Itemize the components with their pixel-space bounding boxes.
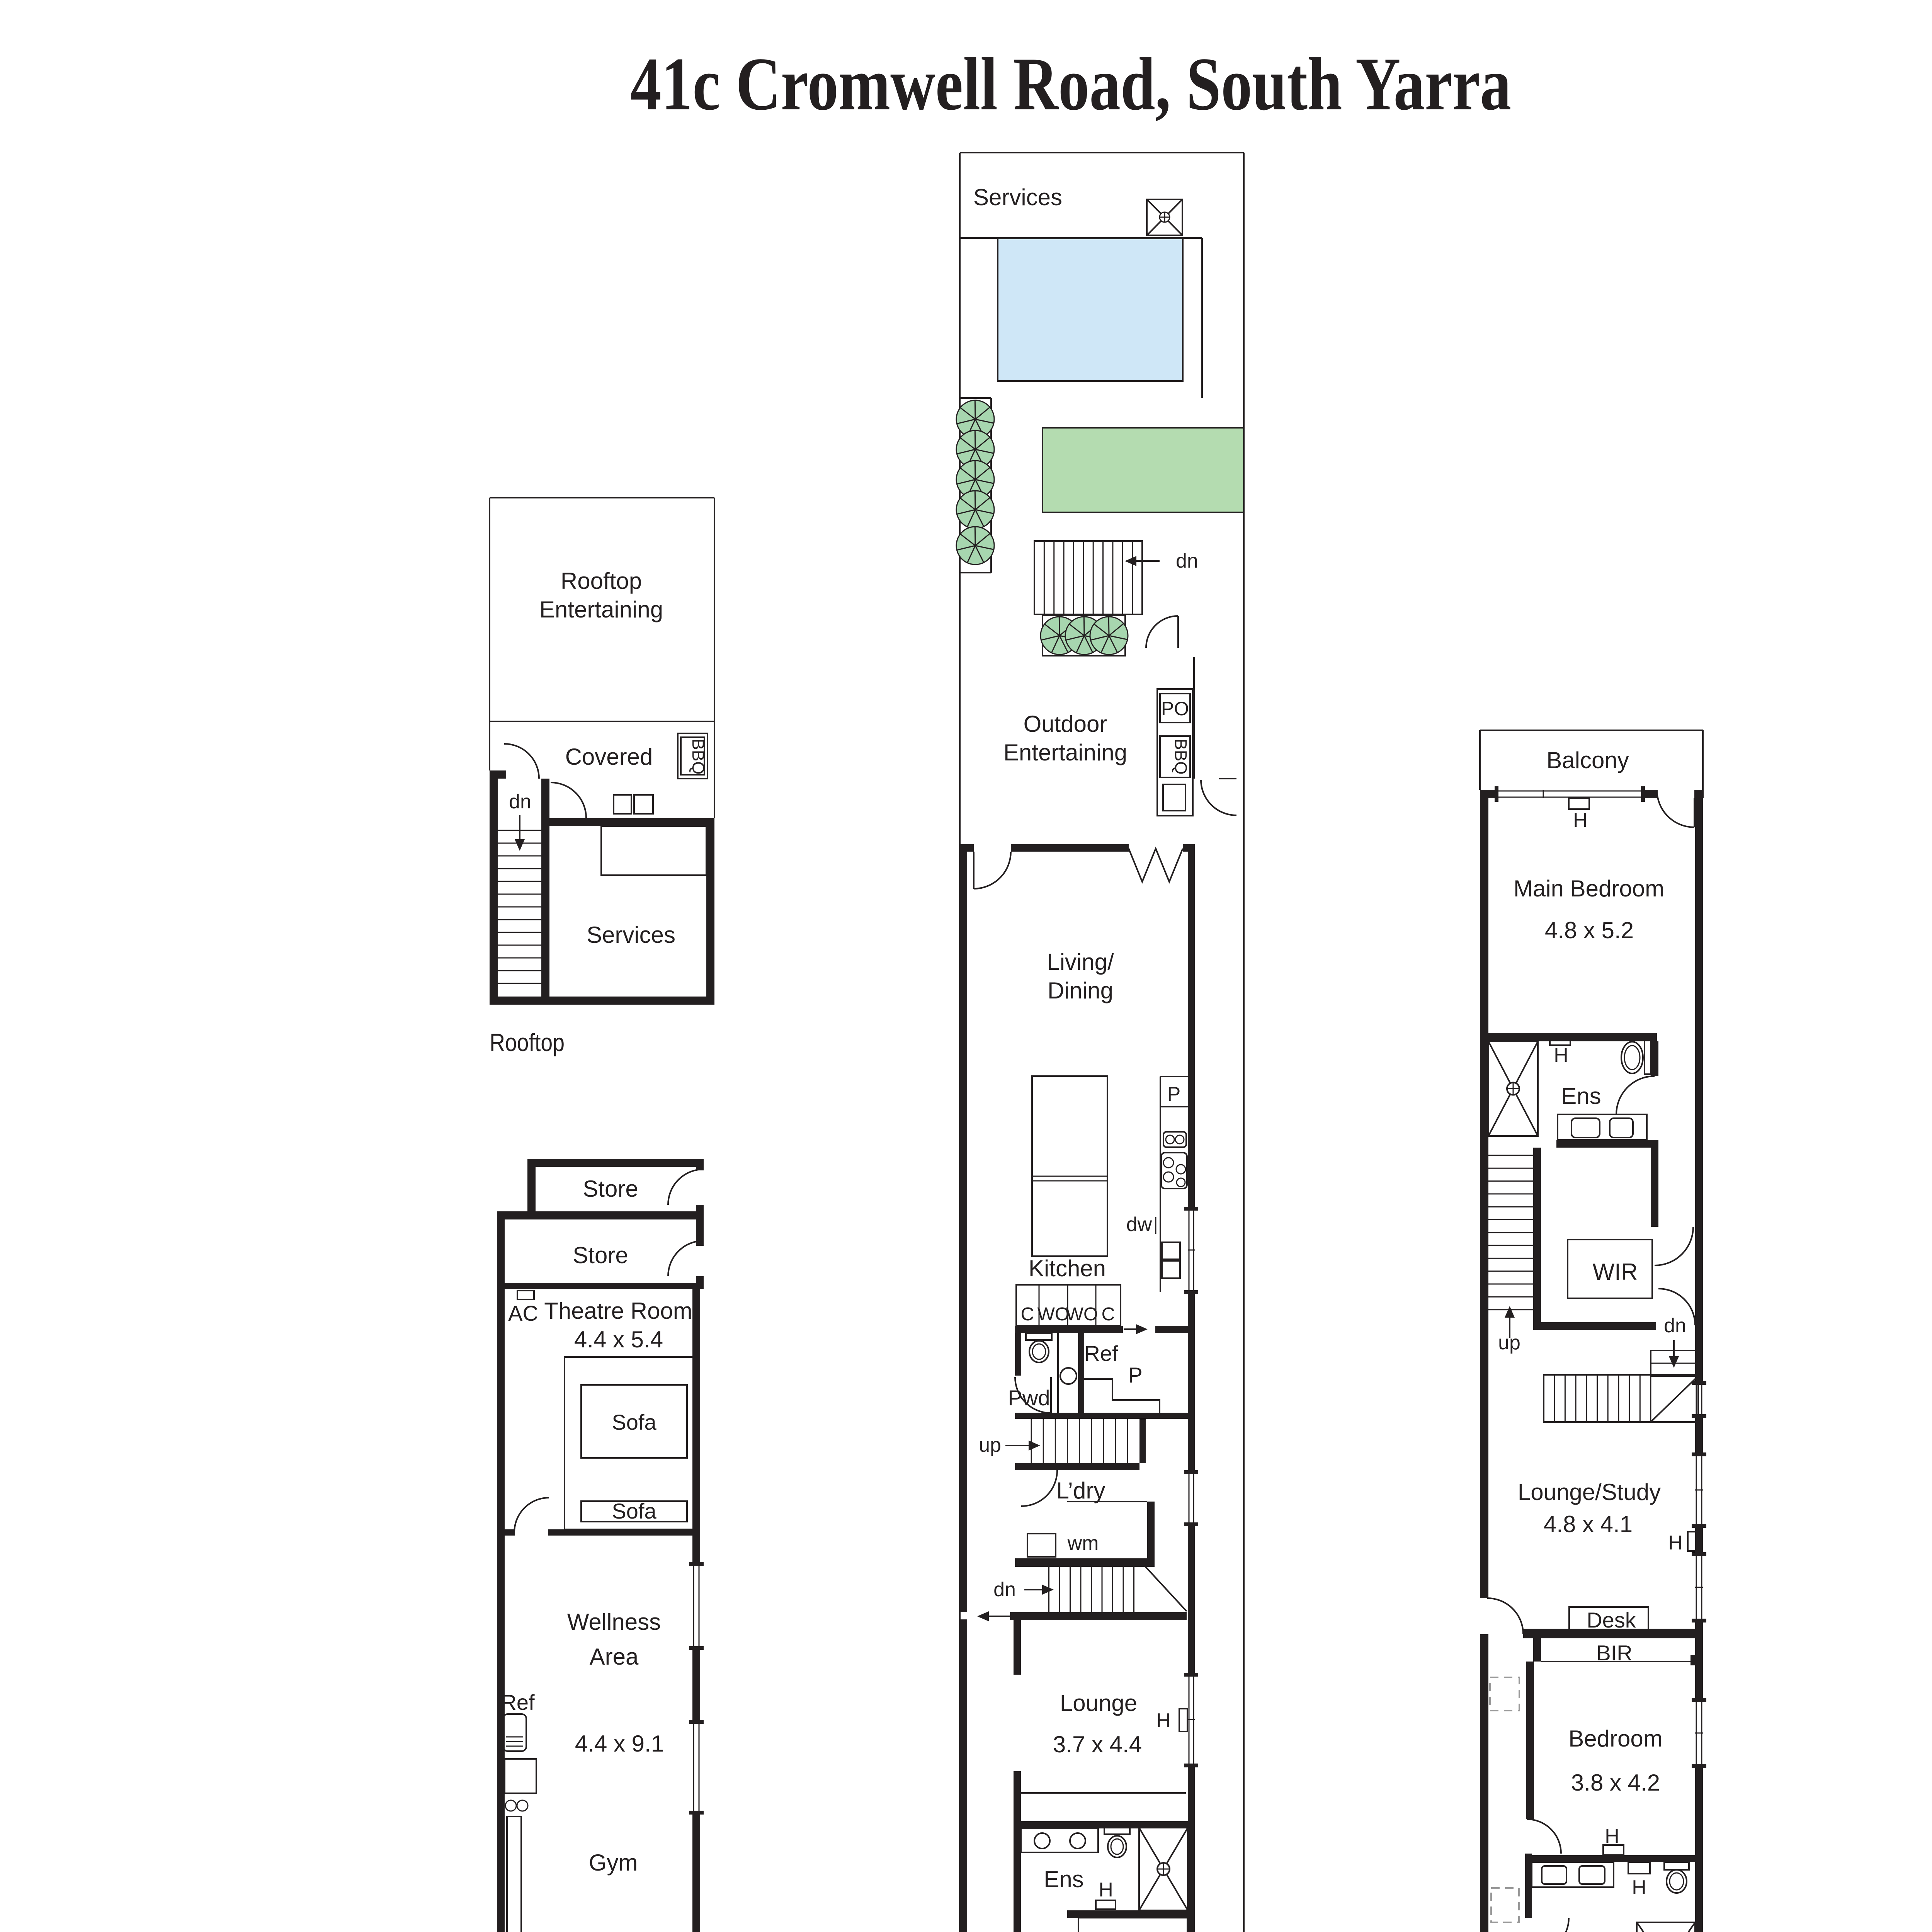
svg-text:41c Cromwell Road, South Yarra: 41c Cromwell Road, South Yarra bbox=[630, 42, 1511, 126]
svg-text:P: P bbox=[1128, 1363, 1142, 1387]
svg-text:H: H bbox=[1605, 1825, 1619, 1847]
svg-text:dn: dn bbox=[993, 1578, 1016, 1601]
svg-text:Ref: Ref bbox=[1084, 1341, 1118, 1366]
svg-text:Sofa: Sofa bbox=[612, 1410, 656, 1434]
svg-text:BBQ: BBQ bbox=[689, 739, 707, 775]
svg-text:PO: PO bbox=[1161, 698, 1189, 719]
svg-text:Area: Area bbox=[590, 1644, 639, 1670]
svg-text:H: H bbox=[1668, 1532, 1683, 1554]
svg-text:Dining: Dining bbox=[1048, 978, 1113, 1003]
svg-text:AC: AC bbox=[508, 1301, 538, 1325]
svg-text:4.8 x 5.2: 4.8 x 5.2 bbox=[1545, 917, 1634, 943]
svg-text:Main Bedroom: Main Bedroom bbox=[1514, 876, 1664, 901]
svg-text:wm: wm bbox=[1067, 1532, 1099, 1554]
svg-text:Kitchen: Kitchen bbox=[1029, 1255, 1106, 1281]
svg-text:BBQ: BBQ bbox=[1171, 739, 1190, 775]
svg-text:Ref: Ref bbox=[501, 1690, 535, 1714]
svg-text:Lounge: Lounge bbox=[1060, 1690, 1137, 1716]
svg-text:H: H bbox=[1156, 1709, 1171, 1732]
svg-text:dn: dn bbox=[1176, 550, 1198, 572]
svg-text:dw: dw bbox=[1126, 1213, 1152, 1236]
svg-text:Ens: Ens bbox=[1044, 1866, 1083, 1892]
svg-text:Pwd: Pwd bbox=[1008, 1386, 1050, 1410]
svg-text:Entertaining: Entertaining bbox=[539, 597, 663, 622]
svg-text:up: up bbox=[979, 1434, 1001, 1456]
svg-text:H: H bbox=[1099, 1879, 1113, 1901]
svg-text:WO: WO bbox=[1066, 1304, 1098, 1325]
svg-text:Desk: Desk bbox=[1587, 1608, 1636, 1632]
svg-text:dn: dn bbox=[509, 791, 531, 813]
svg-text:C: C bbox=[1102, 1304, 1115, 1325]
svg-text:Gym: Gym bbox=[589, 1850, 638, 1876]
svg-text:Store: Store bbox=[573, 1242, 628, 1268]
svg-text:Bedroom: Bedroom bbox=[1568, 1726, 1662, 1752]
svg-text:Rooftop: Rooftop bbox=[490, 1029, 565, 1056]
svg-text:H: H bbox=[1632, 1876, 1646, 1899]
svg-text:Balcony: Balcony bbox=[1546, 747, 1629, 773]
svg-text:Ens: Ens bbox=[1561, 1083, 1601, 1109]
svg-text:Wellness: Wellness bbox=[567, 1609, 661, 1635]
svg-text:Living/: Living/ bbox=[1047, 949, 1114, 975]
svg-text:Lounge/Study: Lounge/Study bbox=[1518, 1479, 1661, 1505]
svg-text:H: H bbox=[1554, 1044, 1568, 1066]
svg-text:3.8 x 4.2: 3.8 x 4.2 bbox=[1571, 1770, 1660, 1796]
svg-text:C: C bbox=[1021, 1304, 1034, 1325]
svg-text:L’dry: L’dry bbox=[1056, 1478, 1105, 1503]
svg-text:WO: WO bbox=[1037, 1304, 1070, 1325]
svg-text:dn: dn bbox=[1664, 1315, 1686, 1337]
svg-text:Services: Services bbox=[587, 922, 675, 948]
svg-text:Theatre Room: Theatre Room bbox=[544, 1298, 692, 1324]
svg-text:Outdoor: Outdoor bbox=[1024, 711, 1107, 737]
svg-text:Store: Store bbox=[583, 1176, 638, 1202]
svg-text:3.7 x 4.4: 3.7 x 4.4 bbox=[1053, 1731, 1142, 1757]
svg-text:Services: Services bbox=[973, 184, 1062, 210]
svg-text:Sofa: Sofa bbox=[612, 1499, 656, 1523]
svg-text:H: H bbox=[1573, 809, 1588, 832]
svg-text:4.8 x 4.1: 4.8 x 4.1 bbox=[1544, 1511, 1633, 1537]
svg-text:Rooftop: Rooftop bbox=[561, 568, 642, 594]
svg-text:Entertaining: Entertaining bbox=[1003, 740, 1127, 765]
svg-text:Covered: Covered bbox=[565, 744, 653, 770]
svg-text:P: P bbox=[1167, 1083, 1181, 1105]
svg-text:4.4 x 5.4: 4.4 x 5.4 bbox=[574, 1327, 663, 1352]
svg-text:WIR: WIR bbox=[1593, 1259, 1638, 1285]
svg-text:4.4 x 9.1: 4.4 x 9.1 bbox=[575, 1731, 664, 1757]
